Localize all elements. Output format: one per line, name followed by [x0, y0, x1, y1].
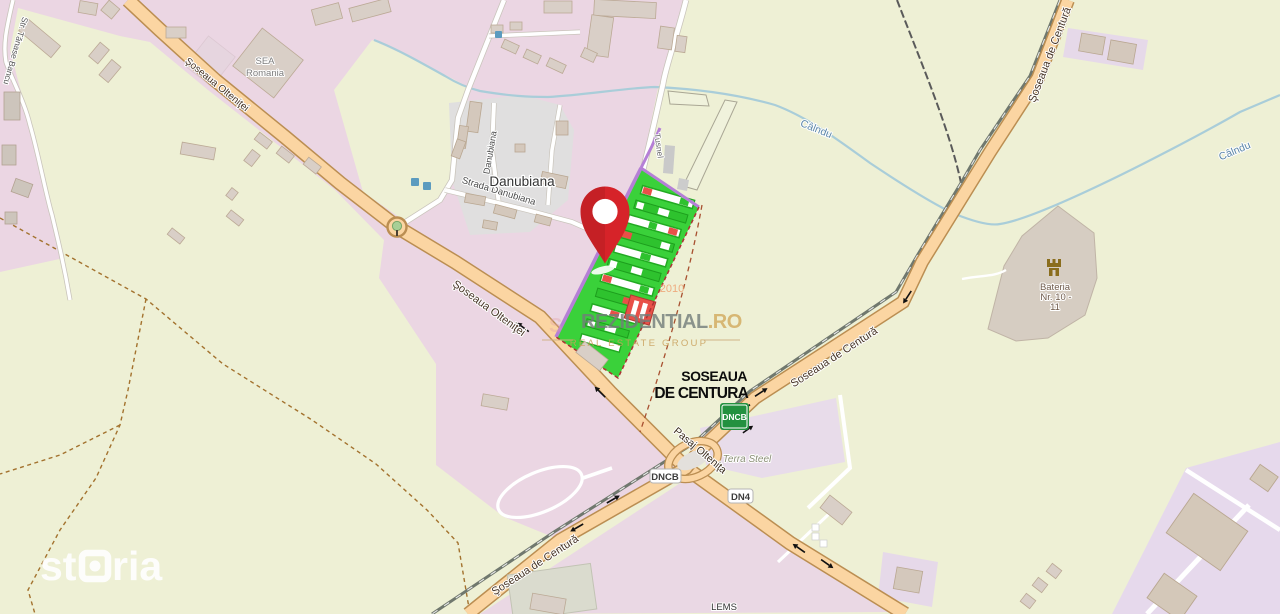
- svg-text:SOSEAUA: SOSEAUA: [681, 368, 747, 384]
- svg-text:Danubiana: Danubiana: [489, 174, 555, 189]
- svg-text:REAL ESTATE GROUP: REAL ESTATE GROUP: [570, 338, 709, 349]
- svg-text:S: S: [549, 315, 562, 337]
- svg-text:11: 11: [1050, 302, 1060, 313]
- svg-text:DE CENTURA: DE CENTURA: [654, 385, 748, 402]
- svg-text:2010: 2010: [660, 283, 684, 295]
- svg-text:DN4: DN4: [731, 492, 751, 503]
- svg-text:LEMS: LEMS: [711, 602, 737, 613]
- svg-text:Terra Steel: Terra Steel: [723, 454, 772, 465]
- svg-text:Romania: Romania: [246, 68, 285, 79]
- svg-text:DNCB: DNCB: [651, 472, 679, 483]
- svg-text:SEA: SEA: [255, 56, 275, 67]
- svg-text:st: st: [40, 543, 77, 589]
- svg-text:REZIDENTIAL.RO: REZIDENTIAL.RO: [581, 311, 742, 333]
- svg-text:ria: ria: [112, 543, 163, 589]
- svg-text:DNCB: DNCB: [722, 412, 747, 422]
